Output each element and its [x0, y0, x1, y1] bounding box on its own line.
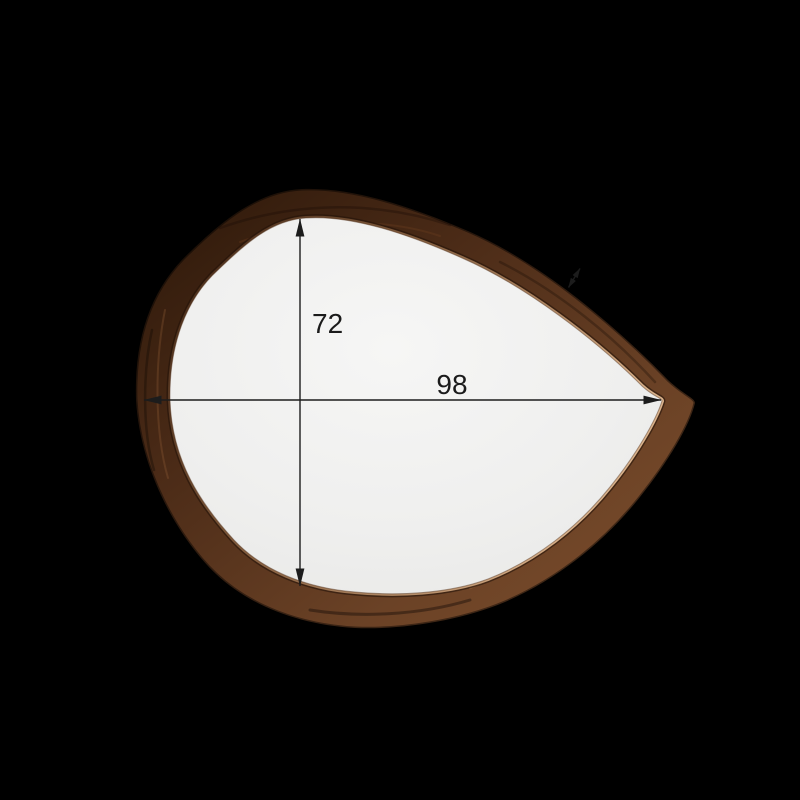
- width-dimension-label: 98: [436, 369, 467, 400]
- product-dimension-diagram: 72 98: [0, 0, 800, 800]
- height-dimension-label: 72: [312, 308, 343, 339]
